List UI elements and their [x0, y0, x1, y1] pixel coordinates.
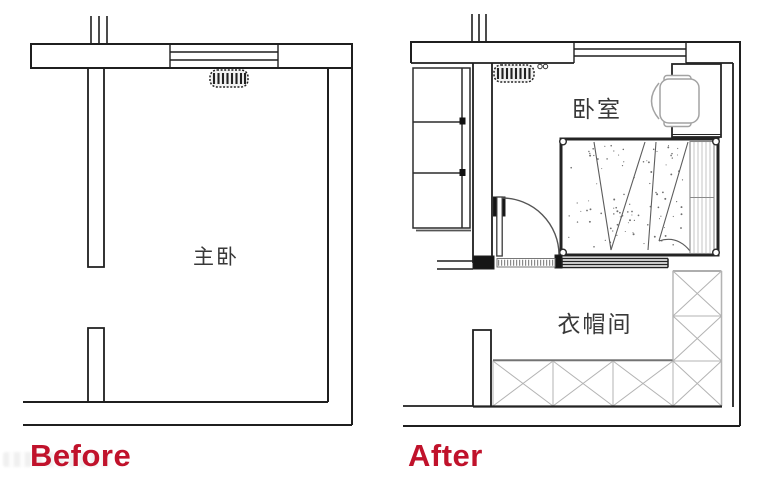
door-swing-icon: [502, 198, 559, 255]
floorplan-comparison: 主卧: [0, 0, 776, 482]
bedroom-door: [473, 197, 562, 269]
chair-seat: [660, 79, 699, 123]
after-caption: After: [408, 440, 483, 471]
radiator-body: [494, 65, 534, 82]
before-exterior-walls: [23, 44, 352, 425]
before-top-wall-band: [31, 44, 352, 68]
before-interior-wall: [88, 68, 104, 402]
bedroom-left-wall: [473, 63, 492, 263]
bed: [560, 138, 720, 256]
closet-module-icon: [553, 361, 613, 406]
before-plan: 主卧: [23, 16, 352, 425]
radiator-body: [210, 70, 248, 87]
closet-x-modules: [493, 271, 722, 406]
after-cloakroom-label: 衣帽间: [558, 311, 633, 337]
cloakroom-closets: [473, 271, 722, 407]
door-threshold: [497, 259, 555, 268]
door-corner-block: [473, 256, 494, 269]
pipe-stack-icon: [91, 16, 107, 44]
closet-module-icon: [673, 361, 722, 406]
interior-wall-upper: [88, 68, 104, 267]
wardrobe-cabinet: [413, 68, 471, 231]
door-leaf: [497, 197, 502, 256]
before-right-wall: [328, 68, 352, 425]
chair-back-arc: [652, 83, 660, 119]
before-room-label: 主卧: [193, 246, 239, 269]
after-plan: 卧室 衣帽间: [403, 14, 740, 426]
wardrobe-handle: [460, 169, 466, 176]
before-bottom-wall: [23, 402, 352, 425]
valve-dot-icon: [543, 64, 547, 68]
radiator-icon: [494, 64, 548, 82]
closet-module-icon: [673, 316, 722, 361]
before-caption: Before: [30, 440, 131, 471]
passage-ledge-lines: [437, 261, 473, 269]
floorplans-drawing: 主卧: [0, 0, 776, 482]
interior-wall-lower-stub: [88, 328, 104, 402]
closet-module-icon: [613, 361, 673, 406]
closet-module-icon: [673, 271, 722, 316]
bottom-window-band: [562, 259, 668, 268]
chair: [652, 76, 700, 127]
after-bedroom-label: 卧室: [572, 96, 622, 122]
cloakroom-wall-stub: [473, 330, 491, 406]
valve-dot-icon: [538, 64, 542, 68]
closet-module-icon: [493, 361, 553, 406]
radiator-icon: [210, 70, 248, 87]
pipe-stack-icon: [472, 14, 486, 42]
pillow-panel: [690, 142, 714, 254]
window-icon: [574, 42, 686, 63]
wardrobe-handle: [460, 118, 466, 125]
door-jamb: [555, 255, 562, 268]
